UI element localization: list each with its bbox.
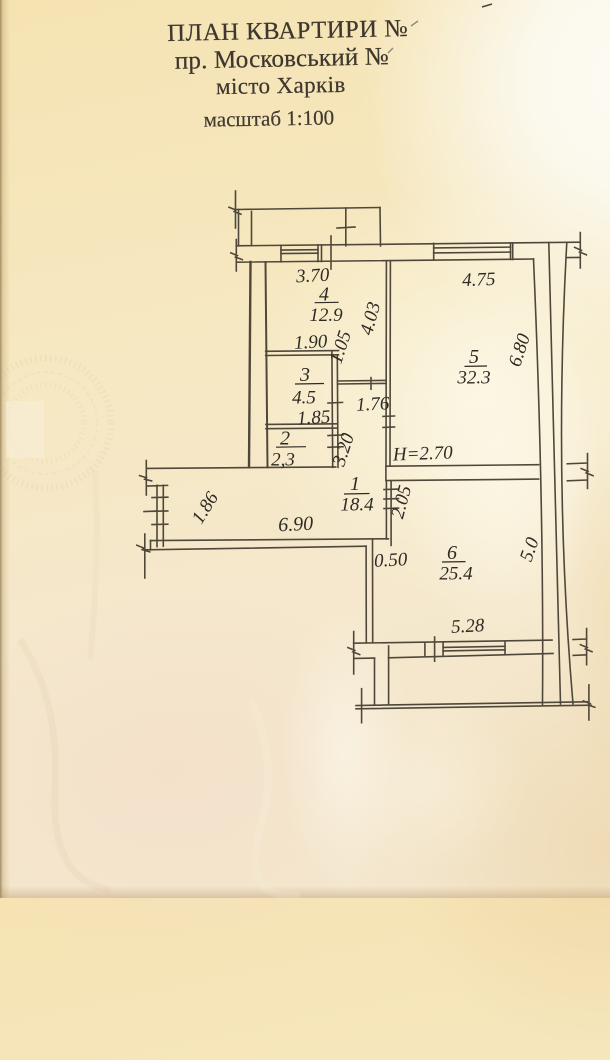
svg-text:H=2.70: H=2.70 — [392, 442, 454, 465]
svg-text:1.05: 1.05 — [326, 328, 356, 366]
svg-text:6: 6 — [447, 542, 457, 564]
svg-text:1: 1 — [350, 473, 360, 495]
svg-text:масштаб 1:100: масштаб 1:100 — [203, 105, 334, 131]
svg-text:5.28: 5.28 — [451, 615, 486, 638]
svg-text:1.85: 1.85 — [297, 407, 331, 430]
svg-text:6.80: 6.80 — [505, 331, 535, 370]
svg-text:4.03: 4.03 — [356, 300, 385, 338]
svg-text:25.4: 25.4 — [439, 564, 473, 585]
svg-text:18.4: 18.4 — [340, 495, 374, 516]
svg-text:4.5: 4.5 — [292, 388, 316, 409]
svg-text:місто Харків: місто Харків — [216, 72, 346, 99]
svg-text:пр. Московський №: пр. Московський № — [175, 43, 390, 74]
svg-text:5.0: 5.0 — [516, 534, 544, 564]
svg-text:1.90: 1.90 — [294, 331, 329, 354]
svg-text:6.90: 6.90 — [278, 513, 314, 537]
svg-text:5: 5 — [469, 346, 479, 368]
svg-text:32.3: 32.3 — [456, 368, 490, 389]
svg-text:ПЛАН КВАРТИРИ №: ПЛАН КВАРТИРИ № — [167, 15, 409, 47]
svg-text:4.75: 4.75 — [462, 269, 496, 291]
svg-text:2: 2 — [280, 428, 290, 450]
svg-text:12.9: 12.9 — [309, 305, 343, 326]
svg-text:0.50: 0.50 — [374, 549, 409, 572]
svg-text:1.76: 1.76 — [356, 393, 391, 416]
svg-text:3: 3 — [299, 364, 310, 386]
svg-text:2,3: 2,3 — [271, 450, 295, 471]
svg-text:3.70: 3.70 — [295, 265, 331, 288]
svg-text:1.86: 1.86 — [188, 488, 224, 528]
